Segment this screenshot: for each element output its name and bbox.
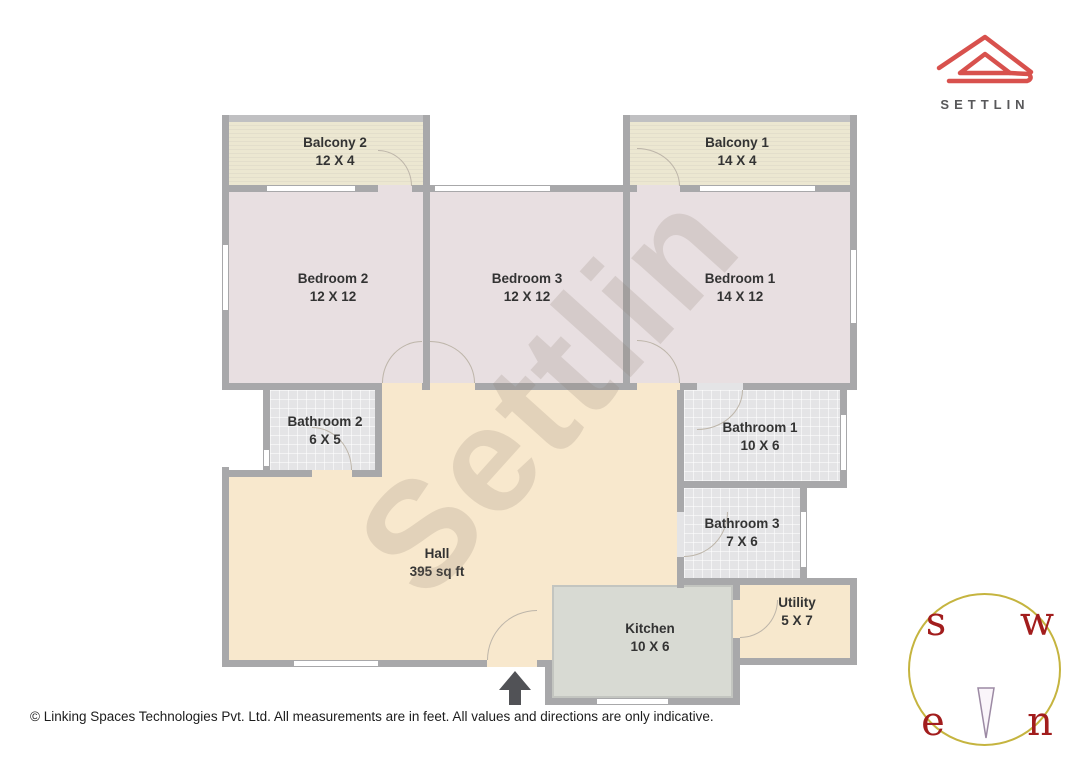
wall-segment bbox=[733, 658, 857, 665]
window-opening bbox=[700, 186, 815, 191]
window-opening bbox=[294, 661, 378, 666]
room-label-hall: Hall 395 sq ft bbox=[410, 545, 465, 581]
compass-south-label: s bbox=[926, 602, 947, 642]
door-opening bbox=[637, 185, 680, 192]
wall-segment bbox=[222, 115, 430, 122]
settlin-logo: SETTLIN bbox=[933, 28, 1037, 112]
wall-segment bbox=[423, 115, 430, 390]
room-name: Balcony 1 bbox=[705, 134, 769, 152]
room-label-kitchen: Kitchen 10 X 6 bbox=[625, 620, 675, 656]
room-label-bathroom3: Bathroom 3 7 X 6 bbox=[704, 515, 779, 551]
door-opening bbox=[733, 600, 740, 638]
door-opening bbox=[697, 383, 743, 390]
compass-west-label: w bbox=[1020, 602, 1054, 642]
window-opening bbox=[841, 415, 846, 470]
door-opening bbox=[430, 383, 475, 390]
room-label-bedroom2: Bedroom 2 12 X 12 bbox=[298, 270, 369, 306]
room-name: Bedroom 3 bbox=[492, 270, 563, 288]
room-dims: 6 X 5 bbox=[287, 431, 362, 449]
window-opening bbox=[267, 186, 355, 191]
wall-segment bbox=[222, 470, 382, 477]
wall-segment bbox=[222, 467, 229, 667]
room-dims: 395 sq ft bbox=[410, 563, 465, 581]
window-opening bbox=[435, 186, 550, 191]
wall-segment bbox=[677, 578, 857, 585]
room-name: Bathroom 1 bbox=[722, 419, 797, 437]
floor-plan-page: Balcony 2 12 X 4 Balcony 1 14 X 4 Bedroo… bbox=[0, 0, 1080, 764]
room-name: Utility bbox=[778, 594, 816, 612]
door-opening bbox=[378, 185, 412, 192]
window-opening bbox=[801, 512, 806, 567]
door-opening bbox=[312, 470, 352, 477]
window-opening bbox=[851, 250, 856, 323]
wall-segment bbox=[623, 115, 630, 390]
room-name: Bathroom 3 bbox=[704, 515, 779, 533]
room-dims: 7 X 6 bbox=[704, 533, 779, 551]
room-dims: 12 X 12 bbox=[298, 288, 369, 306]
room-dims: 10 X 6 bbox=[625, 638, 675, 656]
wall-segment bbox=[222, 383, 857, 390]
wall-segment bbox=[850, 578, 857, 665]
entrance-arrow-icon bbox=[498, 671, 532, 712]
window-opening bbox=[223, 245, 228, 310]
room-name: Balcony 2 bbox=[303, 134, 367, 152]
room-dims: 14 X 4 bbox=[705, 152, 769, 170]
room-dims: 12 X 4 bbox=[303, 152, 367, 170]
room-dims: 14 X 12 bbox=[705, 288, 776, 306]
room-label-utility: Utility 5 X 7 bbox=[778, 594, 816, 630]
door-opening bbox=[382, 383, 422, 390]
room-name: Bedroom 1 bbox=[705, 270, 776, 288]
room-label-balcony2: Balcony 2 12 X 4 bbox=[303, 134, 367, 170]
wall-segment bbox=[375, 383, 382, 477]
copyright-text: © Linking Spaces Technologies Pvt. Ltd. … bbox=[30, 709, 714, 724]
room-name: Hall bbox=[410, 545, 465, 563]
door-opening bbox=[487, 660, 537, 667]
compass-east-label: e bbox=[921, 702, 945, 742]
hall-floor-upper bbox=[382, 390, 677, 477]
compass-north-label: n bbox=[1027, 702, 1053, 742]
room-name: Bedroom 2 bbox=[298, 270, 369, 288]
room-dims: 5 X 7 bbox=[778, 612, 816, 630]
room-label-balcony1: Balcony 1 14 X 4 bbox=[705, 134, 769, 170]
settlin-logo-text: SETTLIN bbox=[933, 97, 1037, 112]
settlin-roof-icon bbox=[933, 28, 1037, 90]
window-opening bbox=[264, 450, 269, 466]
room-dims: 12 X 12 bbox=[492, 288, 563, 306]
room-label-bedroom1: Bedroom 1 14 X 12 bbox=[705, 270, 776, 306]
window-opening bbox=[597, 699, 668, 704]
wall-segment bbox=[733, 578, 740, 705]
door-opening bbox=[637, 383, 680, 390]
compass-needle-icon bbox=[968, 683, 1004, 748]
room-name: Bathroom 2 bbox=[287, 413, 362, 431]
wall-segment bbox=[623, 115, 857, 122]
wall-segment bbox=[677, 481, 847, 488]
door-opening bbox=[677, 512, 684, 557]
room-name: Kitchen bbox=[625, 620, 675, 638]
room-label-bathroom2: Bathroom 2 6 X 5 bbox=[287, 413, 362, 449]
room-dims: 10 X 6 bbox=[722, 437, 797, 455]
room-label-bedroom3: Bedroom 3 12 X 12 bbox=[492, 270, 563, 306]
room-label-bathroom1: Bathroom 1 10 X 6 bbox=[722, 419, 797, 455]
